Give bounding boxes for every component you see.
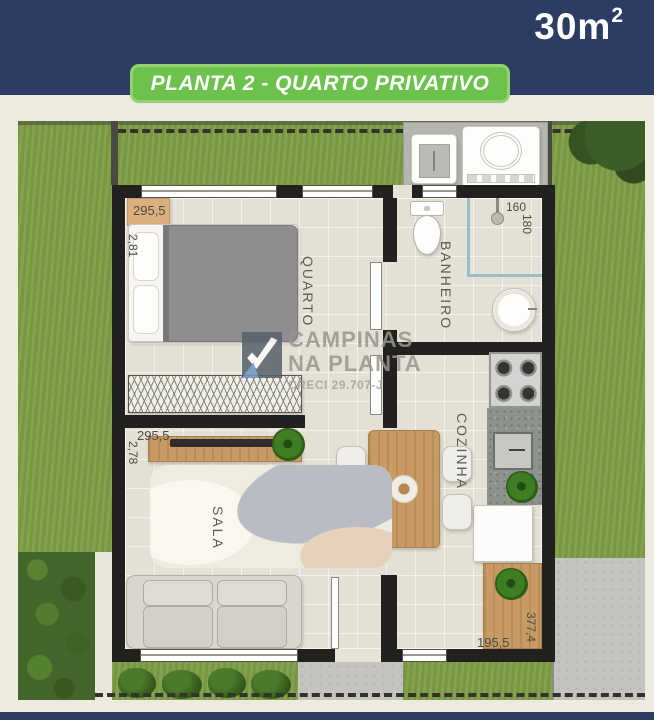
sofa-seat-cushion: [217, 606, 287, 648]
stove: [489, 352, 542, 408]
floor-plan-page: 30m2 PLANTA 2 - QUARTO PRIVATIVO: [0, 0, 654, 720]
dining-chair: [442, 494, 472, 530]
bathroom-depth-dim: 180: [521, 214, 533, 234]
shower-arm: [496, 198, 499, 213]
site-plan: 295,5 2,81 QUARTO 160 180 BANHEIRO: [18, 121, 645, 700]
pillow: [133, 285, 159, 334]
bathroom-sink: [492, 288, 536, 332]
kitchen-label: COZINHA: [455, 413, 469, 485]
table-centerpiece: [390, 475, 418, 503]
laundry-tub: [411, 134, 457, 184]
bedroom-label: QUARTO: [301, 256, 315, 320]
sink-faucet: [528, 308, 537, 310]
bedroom-depth-dim: 2,81: [127, 234, 139, 257]
rug: [150, 465, 392, 568]
tv: [170, 439, 280, 447]
brand-logo-icon: [242, 332, 282, 378]
watermark: CAMPINAS NA PLANTA CRECI 29.707-J: [242, 326, 427, 398]
plan-title-banner: PLANTA 2 - QUARTO PRIVATIVO: [130, 64, 510, 103]
counter-plant-icon: [506, 471, 538, 503]
toilet-button: [424, 206, 430, 211]
kitchen-width-dim: 195,5: [477, 636, 510, 649]
living-width-dim: 295,5: [137, 429, 170, 442]
shower-box: [467, 198, 542, 277]
wall-bedroom-bathroom: [383, 198, 397, 262]
house-outline: 295,5 2,81 QUARTO 160 180 BANHEIRO: [112, 185, 555, 662]
living-window: [140, 649, 298, 662]
kitchen-depth-dim: 377,4: [525, 612, 537, 642]
area-value: 30m: [534, 6, 611, 47]
console-plant-icon: [272, 428, 305, 461]
bathroom-door: [370, 262, 382, 330]
bedroom-window-2: [302, 185, 373, 198]
double-bed: [128, 224, 298, 342]
kitchen-window: [402, 649, 447, 662]
living-depth-dim: 2,78: [127, 441, 139, 464]
bed-blanket: [163, 225, 298, 342]
shower-head-icon: [491, 212, 504, 225]
wall-entry-stub: [381, 575, 397, 649]
bathroom-width-dim: 160: [506, 201, 526, 213]
washer-panel: [467, 174, 535, 183]
laundry-door-opening: [393, 185, 412, 198]
bathroom-window: [422, 185, 457, 198]
sideboard-plant-icon: [495, 568, 528, 600]
brand-name-line2: NA PLANTA: [288, 352, 422, 376]
driveway-concrete: [552, 558, 645, 700]
brand-name-line1: CAMPINAS: [288, 328, 413, 352]
front-door-opening: [335, 649, 381, 662]
living-label: SALA: [211, 506, 225, 554]
tub-faucet: [433, 151, 435, 171]
side-path: [95, 552, 112, 700]
refrigerator: [473, 505, 533, 562]
bedroom-width-dim: 295,5: [133, 204, 166, 217]
area-label: 30m2: [534, 6, 624, 48]
bathroom-label: BANHEIRO: [439, 241, 453, 327]
tree-canopy-icon: [552, 121, 645, 191]
license-number: CRECI 29.707-J: [288, 378, 383, 392]
property-line-bottom: [95, 693, 645, 697]
sofa: [126, 575, 302, 649]
side-lot-wall-left: [111, 121, 118, 185]
sofa-back-cushion: [143, 580, 213, 606]
area-exponent: 2: [611, 4, 624, 27]
bedroom-window-1: [141, 185, 277, 198]
washing-machine: [462, 126, 540, 188]
toilet-bowl: [413, 215, 441, 255]
sofa-seat-cushion: [143, 606, 213, 648]
shrub-strip-left: [18, 552, 95, 700]
plan-title: PLANTA 2 - QUARTO PRIVATIVO: [151, 72, 490, 96]
kitchen-faucet: [509, 449, 525, 451]
wall-bedroom-living: [125, 415, 305, 428]
footer-band: [0, 712, 654, 720]
sofa-back-cushion: [217, 580, 287, 606]
front-door: [331, 577, 339, 649]
kitchen-sink: [493, 432, 533, 470]
washer-drum: [480, 132, 522, 170]
